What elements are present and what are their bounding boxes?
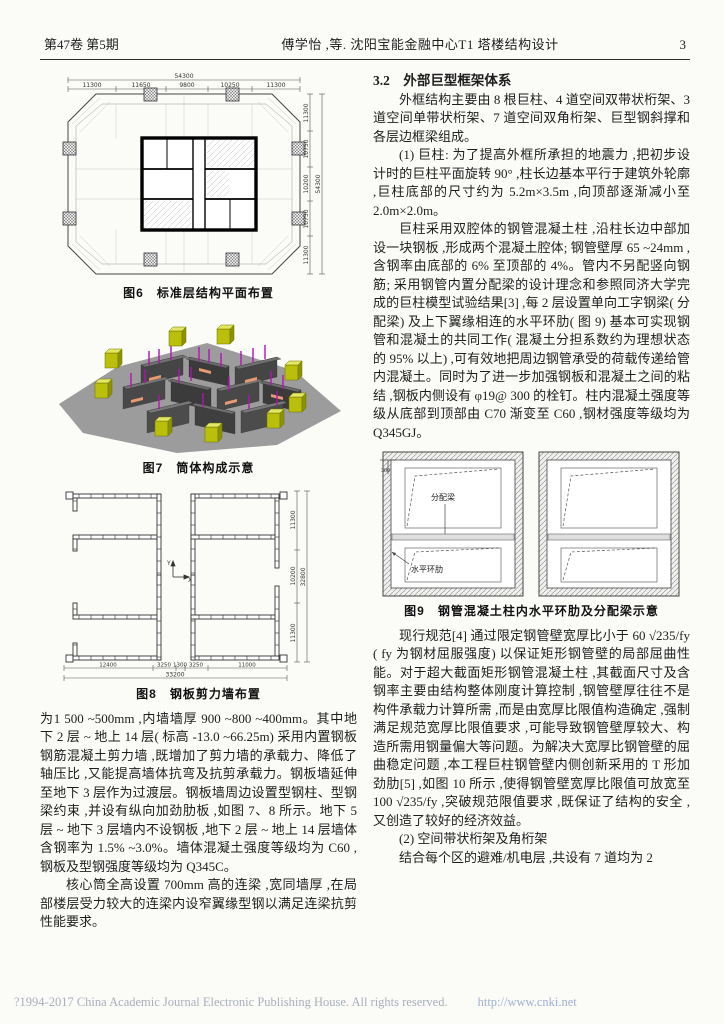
volume-issue: 第47卷 第5期: [44, 34, 194, 53]
page-number: 3: [646, 37, 686, 53]
figure-6: 54300 11300 11650 9800 10250 11300: [40, 72, 357, 303]
dim-label: 1300: [173, 663, 187, 669]
axis-x-label: X: [188, 577, 192, 584]
page-header: 第47卷 第5期 傅学怡 ,等. 沈阳宝能金融中心T1 塔楼结构设计 3: [40, 34, 690, 60]
dim-label: 10750: [303, 209, 310, 228]
journal-page: 第47卷 第5期 傅学怡 ,等. 沈阳宝能金融中心T1 塔楼结构设计 3: [0, 0, 724, 932]
dim-label: 11300: [266, 82, 285, 89]
dim-label: 10200: [290, 566, 297, 585]
figure8-shear-wall-image: Y X 12400 3250 1300 3250 11000 33200: [49, 483, 349, 683]
distribution-beam-label: 分配梁: [431, 493, 455, 502]
figure6-caption: 图6 标准层结构平面布置: [40, 284, 357, 303]
dim-label: 11300: [290, 510, 297, 529]
body-paragraph: 核心筒全高设置 700mm 高的连梁 ,宽同墙厚 ,在局部楼层受力较大的连梁内设…: [40, 876, 357, 932]
ring-rib-label: 水平环肋: [411, 564, 443, 574]
dim-label: 10750: [303, 139, 310, 158]
figure-7: 图7 筒体构成示意: [40, 309, 357, 478]
dim-label: 33200: [165, 672, 184, 679]
dim-label: 54300: [174, 73, 193, 80]
dim-label: 11300: [290, 623, 297, 642]
dim-label: 11300: [82, 82, 101, 89]
figure-8: Y X 12400 3250 1300 3250 11000 33200: [40, 483, 357, 704]
figure7-caption: 图7 筒体构成示意: [40, 459, 357, 478]
figure9-ring-rib-image: 分配梁 水平环肋 300: [379, 448, 685, 600]
body-paragraph: 外框结构主要由 8 根巨柱、4 道空间双带状桁架、3 道空间单带状桁架、7 道空…: [373, 91, 690, 147]
left-column: 54300 11300 11650 9800 10250 11300: [40, 72, 357, 932]
axis-y-label: Y: [166, 560, 171, 567]
body-paragraph: 为1 500 ~500mm ,内墙墙厚 900 ~800 ~400mm。其中地下…: [40, 710, 357, 877]
dim-label: 32800: [300, 567, 307, 586]
right-column: 3.2 外部巨型框架体系 外框结构主要由 8 根巨柱、4 道空间双带状桁架、3 …: [373, 72, 690, 932]
dim-label: 11300: [303, 245, 310, 264]
body-paragraph: 巨柱采用双腔体的钢管混凝土柱 ,沿柱长边中部加设一块钢板 ,形成两个混凝土腔体;…: [373, 220, 690, 442]
figure-9: 分配梁 水平环肋 300: [373, 448, 690, 621]
body-paragraph: 现行规范[4] 通过限定钢管壁宽厚比小于 60 √235/fy ( fy 为钢材…: [373, 627, 690, 831]
dim-label: 10200: [303, 174, 310, 193]
figure8-caption: 图8 钢板剪力墙布置: [40, 685, 357, 704]
two-column-body: 54300 11300 11650 9800 10250 11300: [40, 72, 690, 932]
dim-label: 11300: [303, 103, 310, 122]
dim-label: 9800: [179, 82, 194, 89]
cnki-link[interactable]: http://www.cnki.net: [478, 995, 577, 1009]
page-footer: ?1994-2017 China Academic Journal Electr…: [14, 995, 710, 1010]
running-title: 傅学怡 ,等. 沈阳宝能金融中心T1 塔楼结构设计: [194, 34, 646, 53]
dim-label: 12400: [99, 663, 117, 669]
copyright-text: ?1994-2017 China Academic Journal Electr…: [14, 995, 448, 1009]
section-heading: 3.2 外部巨型框架体系: [373, 72, 690, 91]
figure6-floor-plan-image: 54300 11300 11650 9800 10250 11300: [48, 72, 350, 282]
figure9-caption: 图9 钢管混凝土柱内水平环肋及分配梁示意: [373, 602, 690, 621]
dim-label: 11000: [238, 663, 256, 669]
body-paragraph: 结合每个区的避难/机电层 ,共设有 7 道均为 2: [373, 849, 690, 868]
dim-label: 54300: [315, 174, 322, 193]
dim-label: 3250: [157, 663, 171, 669]
body-paragraph: (1) 巨柱: 为了提高外框所承担的地震力 ,把初步设计时的巨柱平面旋转 90°…: [373, 146, 690, 220]
dim-300-label: 300: [381, 468, 390, 474]
dim-label: 3250: [189, 663, 203, 669]
figure7-core-3d-image: [49, 309, 349, 457]
body-paragraph: (2) 空间带状桁架及角桁架: [373, 830, 690, 849]
